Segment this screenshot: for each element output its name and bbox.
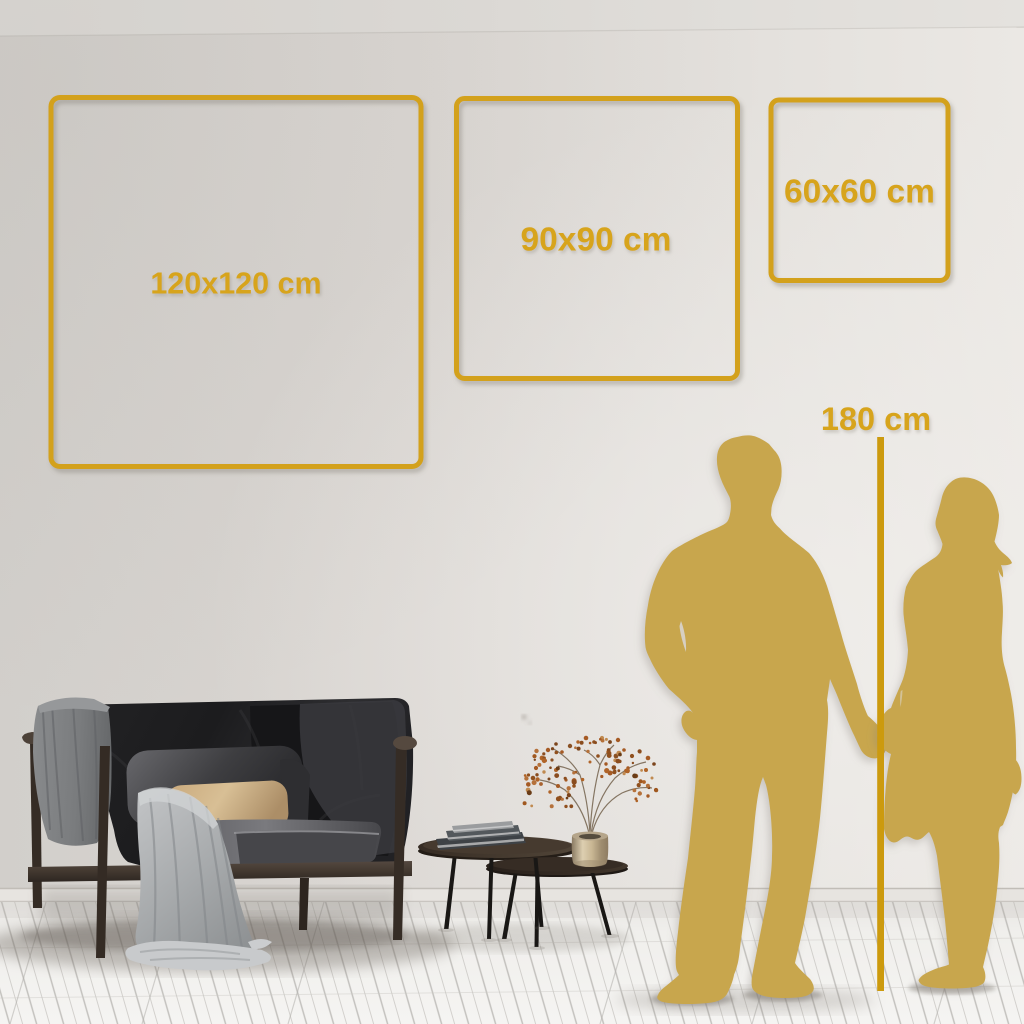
svg-text:60x60 cm: 60x60 cm [784,174,935,211]
svg-text:180 cm: 180 cm [821,401,931,437]
svg-text:90x90 cm: 90x90 cm [521,222,672,259]
svg-text:120x120 cm: 120x120 cm [150,267,321,301]
